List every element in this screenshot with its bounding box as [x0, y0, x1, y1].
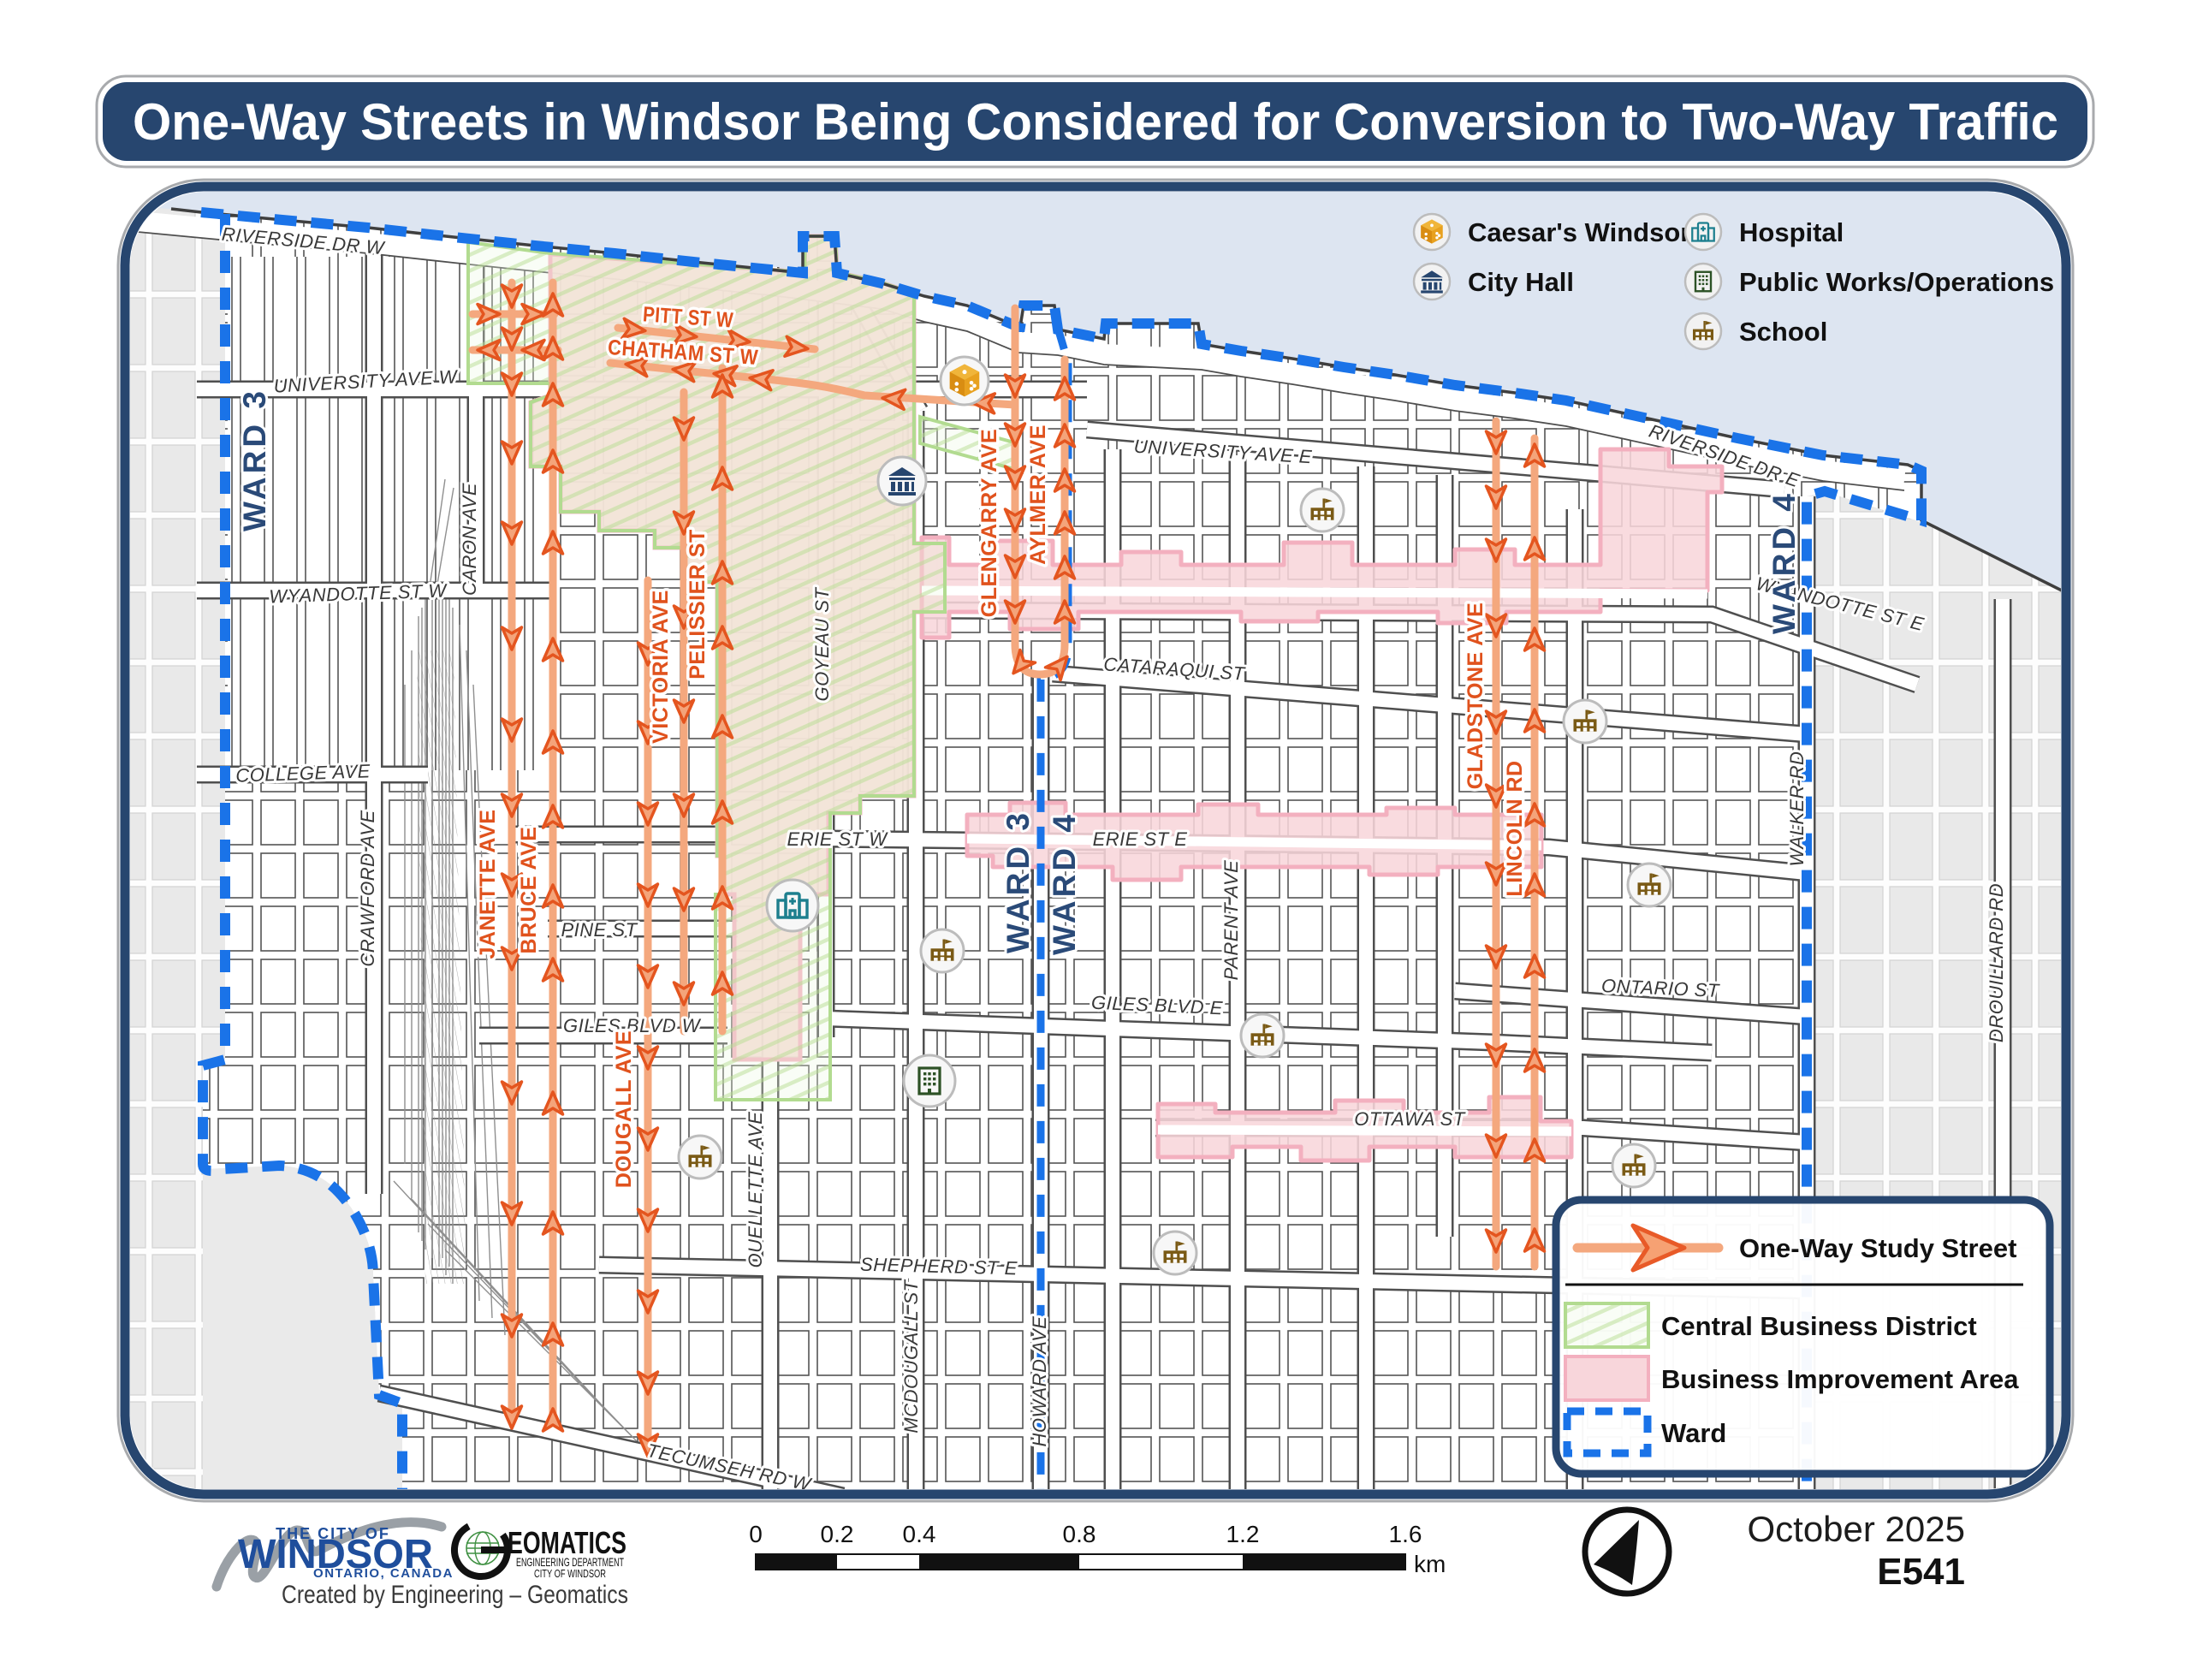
svg-text:GOYEAU ST: GOYEAU ST	[811, 587, 833, 702]
svg-text:CITY OF WINDSOR: CITY OF WINDSOR	[534, 1567, 606, 1580]
svg-text:One-Way Streets in Windsor Bei: One-Way Streets in Windsor Being Conside…	[133, 93, 2058, 151]
svg-text:0.8: 0.8	[1063, 1521, 1096, 1547]
svg-text:City Hall: City Hall	[1468, 267, 1574, 297]
svg-text:OUELLETTE AVE: OUELLETTE AVE	[745, 1112, 766, 1268]
svg-text:MCDOUGALL ST: MCDOUGALL ST	[900, 1279, 922, 1433]
svg-text:Hospital: Hospital	[1739, 217, 1844, 247]
svg-text:Created by Engineering – Geoma: Created by Engineering – Geomatics	[282, 1581, 628, 1609]
svg-text:WARD 4: WARD 4	[1047, 811, 1082, 955]
svg-text:PINE ST: PINE ST	[561, 919, 638, 941]
svg-text:SHEPHERD ST E: SHEPHERD ST E	[860, 1254, 1018, 1279]
svg-text:AYLMER AVE: AYLMER AVE	[1026, 424, 1050, 565]
svg-text:VICTORIA AVE: VICTORIA AVE	[649, 590, 673, 744]
svg-text:0.2: 0.2	[821, 1521, 854, 1547]
svg-text:GLADSTONE AVE: GLADSTONE AVE	[1464, 603, 1487, 790]
svg-text:CRAWFORD AVE: CRAWFORD AVE	[357, 810, 378, 966]
svg-text:PELISSIER ST: PELISSIER ST	[686, 529, 710, 679]
svg-text:October 2025: October 2025	[1747, 1509, 1965, 1549]
svg-text:Caesar's Windsor: Caesar's Windsor	[1468, 217, 1690, 247]
svg-text:DROUILLARD RD: DROUILLARD RD	[1986, 883, 2007, 1042]
svg-text:WARD 3: WARD 3	[1000, 810, 1036, 953]
svg-text:Public Works/Operations: Public Works/Operations	[1739, 267, 2054, 297]
svg-text:OTTAWA ST: OTTAWA ST	[1354, 1108, 1466, 1130]
svg-text:PARENT AVE: PARENT AVE	[1220, 860, 1242, 981]
svg-text:One-Way Study Street: One-Way Study Street	[1739, 1233, 2016, 1263]
svg-text:School: School	[1739, 317, 1827, 347]
svg-text:JANETTE AVE: JANETTE AVE	[476, 810, 500, 959]
svg-text:Business Improvement Area: Business Improvement Area	[1661, 1364, 2019, 1394]
svg-text:GLENGARRY AVE: GLENGARRY AVE	[977, 429, 1001, 617]
svg-text:ERIE ST E: ERIE ST E	[1093, 828, 1188, 850]
svg-text:WALKER RD: WALKER RD	[1786, 751, 1808, 867]
svg-text:Central Business District: Central Business District	[1661, 1311, 1977, 1341]
svg-text:WARD 3: WARD 3	[237, 388, 272, 531]
svg-text:ONTARIO, CANADA: ONTARIO, CANADA	[313, 1566, 454, 1581]
svg-text:HOWARD AVE: HOWARD AVE	[1029, 1316, 1050, 1447]
svg-text:1.2: 1.2	[1226, 1521, 1260, 1547]
svg-text:0.4: 0.4	[903, 1521, 936, 1547]
svg-text:DOUGALL AVE: DOUGALL AVE	[612, 1030, 636, 1188]
svg-text:ERIE ST W: ERIE ST W	[787, 828, 889, 850]
svg-text:0: 0	[749, 1521, 763, 1547]
svg-text:LINCOLN RD: LINCOLN RD	[1503, 760, 1527, 896]
svg-text:WARD 4: WARD 4	[1766, 490, 1802, 634]
svg-text:km: km	[1414, 1551, 1446, 1577]
svg-text:E541: E541	[1877, 1551, 1965, 1593]
svg-text:BRUCE AVE: BRUCE AVE	[517, 827, 541, 954]
svg-text:CARON AVE: CARON AVE	[459, 483, 480, 596]
svg-text:Ward: Ward	[1661, 1418, 1726, 1448]
svg-text:1.6: 1.6	[1389, 1521, 1422, 1547]
